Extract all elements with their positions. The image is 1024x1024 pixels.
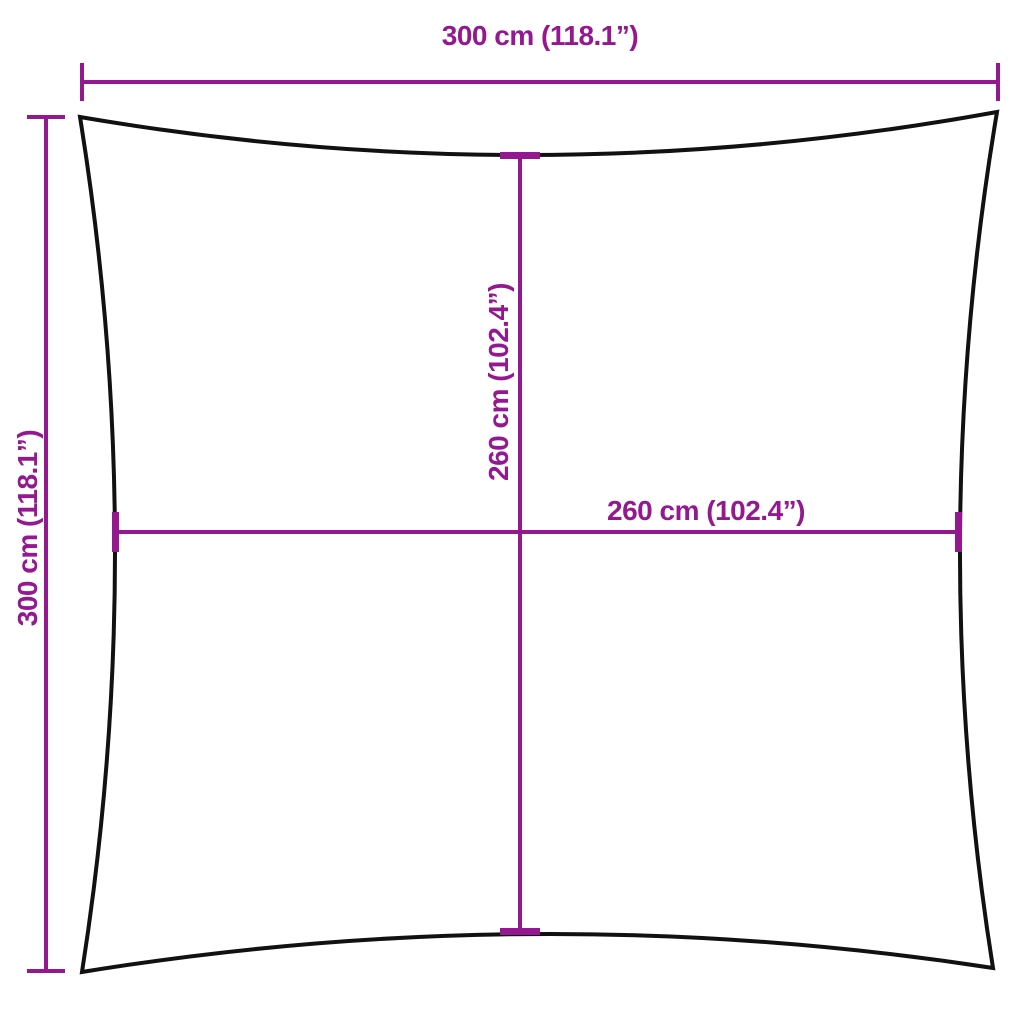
tick-left-bottom xyxy=(27,969,65,973)
tick-inner-horizontal-left xyxy=(112,512,119,552)
dimension-label-left-height: 300 cm (118.1”) xyxy=(14,430,42,626)
tick-inner-horizontal-right xyxy=(955,512,962,552)
tick-top-left xyxy=(80,63,84,101)
dimension-label-inner-horizontal: 260 cm (102.4”) xyxy=(607,497,805,525)
sail-outline-path xyxy=(80,112,997,972)
tick-inner-vertical-bottom xyxy=(500,928,540,935)
tick-top-right xyxy=(996,63,1000,101)
dimension-line-inner-vertical xyxy=(518,155,522,934)
dimension-diagram: 300 cm (118.1”) 300 cm (118.1”) 260 cm (… xyxy=(0,0,1024,1024)
tick-inner-vertical-top xyxy=(500,152,540,159)
tick-left-top xyxy=(27,115,65,119)
dimension-line-left xyxy=(44,117,48,971)
dimension-label-inner-vertical: 260 cm (102.4”) xyxy=(485,283,513,481)
dimension-line-inner-horizontal xyxy=(115,530,960,534)
dimension-label-top-width: 300 cm (118.1”) xyxy=(442,22,638,50)
dimension-line-top xyxy=(82,80,998,84)
